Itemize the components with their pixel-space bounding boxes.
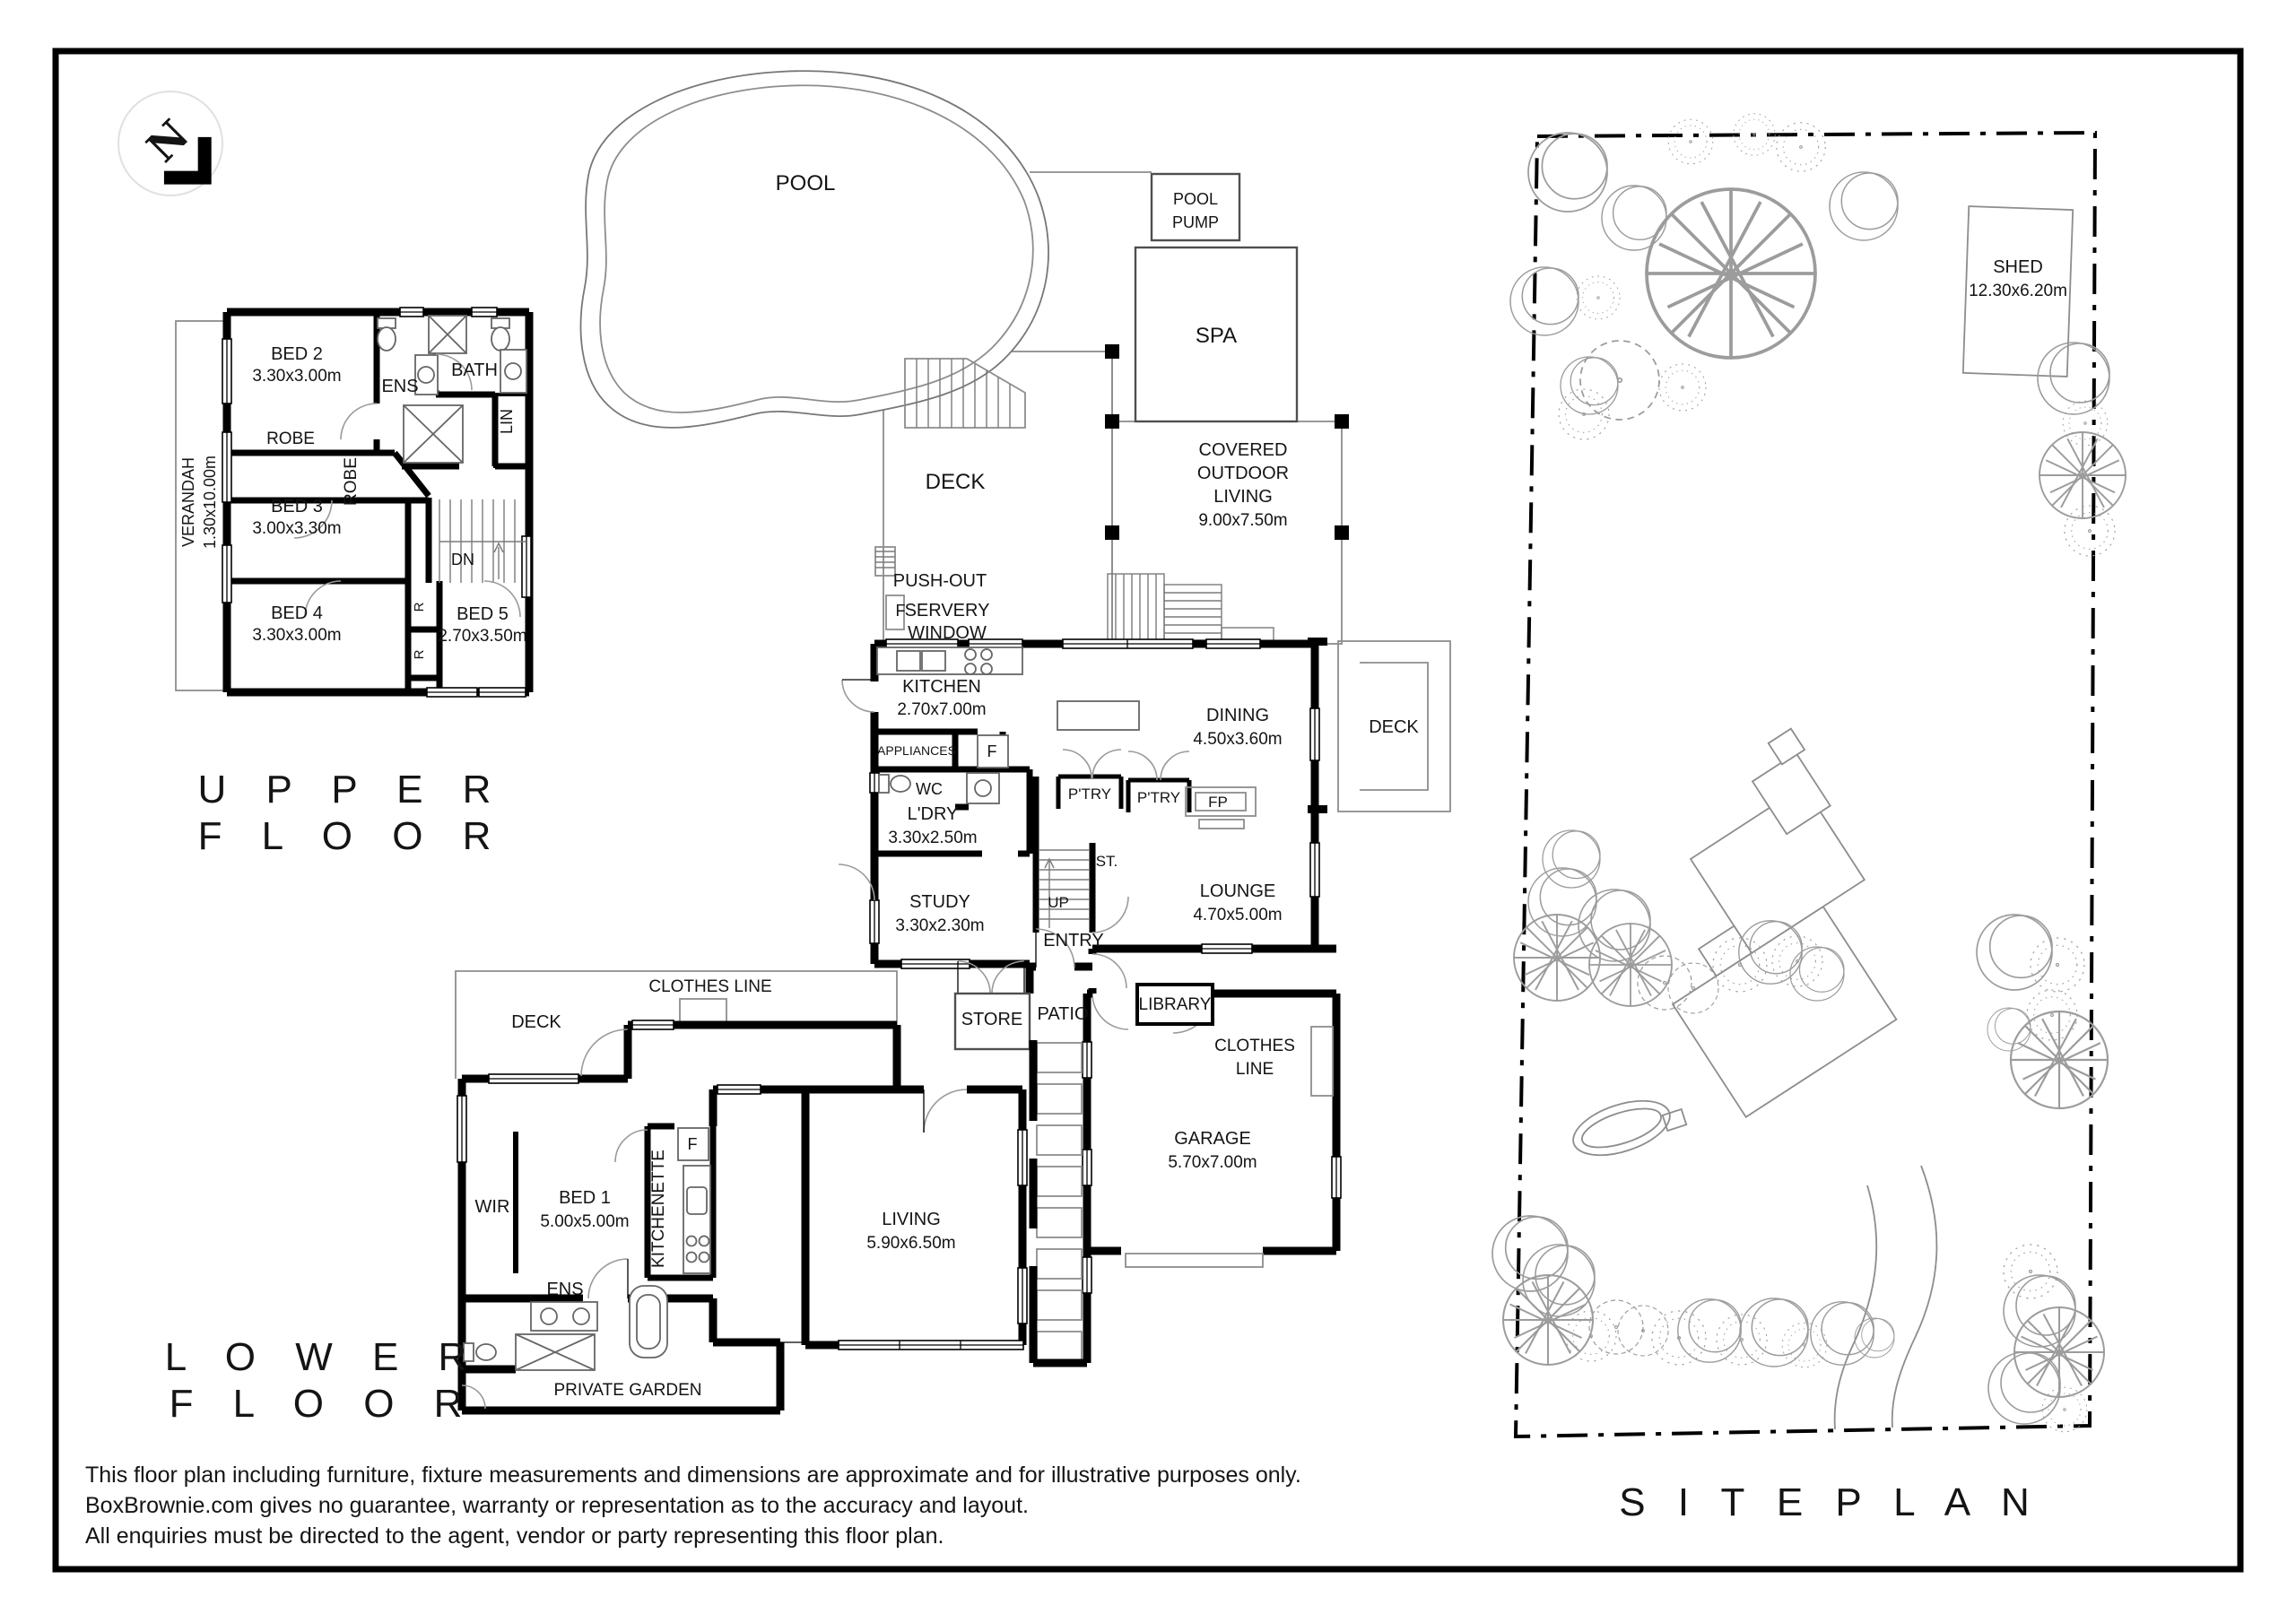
- svg-text:5.70x7.00m: 5.70x7.00m: [1168, 1153, 1257, 1172]
- svg-text:WINDOW: WINDOW: [908, 623, 987, 643]
- label-wir: WIR: [475, 1197, 510, 1217]
- svg-text:R: R: [412, 602, 427, 612]
- label-private-garden: PRIVATE GARDEN: [553, 1381, 701, 1400]
- svg-text:3.30x2.50m: 3.30x2.50m: [888, 829, 977, 847]
- label-garage: GARAGE: [1174, 1129, 1251, 1149]
- label-covered-outdoor-living: COVERED: [1199, 440, 1288, 460]
- label-dn: DN: [451, 551, 474, 568]
- label-kitchenette: KITCHENETTE: [649, 1150, 668, 1268]
- svg-text:5.00x5.00m: 5.00x5.00m: [540, 1212, 629, 1231]
- label-bed5: BED 5: [457, 604, 509, 624]
- label-living: LIVING: [882, 1210, 941, 1229]
- north-arrow-icon: N: [118, 91, 225, 198]
- label-lounge: LOUNGE: [1200, 881, 1275, 901]
- label-kitchen: KITCHEN: [902, 677, 981, 697]
- svg-text:R: R: [412, 649, 427, 659]
- svg-text:1.30x10.00m: 1.30x10.00m: [201, 456, 219, 549]
- label-deck-pool: DECK: [926, 470, 986, 494]
- disclaimer-line2: BoxBrownie.com gives no guarantee, warra…: [85, 1493, 1029, 1518]
- label-verandah: VERANDAH: [179, 457, 197, 547]
- pool: [581, 71, 1049, 428]
- label-clothesline-right: CLOTHES: [1214, 1037, 1295, 1055]
- svg-text:LIVING: LIVING: [1213, 487, 1273, 507]
- label-shed: SHED: [1993, 257, 2043, 277]
- site-plan-title: S I T E P L A N: [1619, 1480, 2039, 1524]
- label-ptry2: P'TRY: [1137, 789, 1180, 806]
- svg-text:F L O O R: F L O O R: [170, 1382, 477, 1426]
- upper-floor-title: U P P E R: [198, 768, 506, 811]
- svg-text:PUMP: PUMP: [1172, 213, 1219, 231]
- label-up: UP: [1048, 894, 1069, 911]
- label-patio: PATIO: [1037, 1004, 1088, 1024]
- label-ens-upper: ENS: [381, 377, 418, 396]
- label-pool-pump: POOL: [1173, 190, 1218, 208]
- label-ptry1: P'TRY: [1068, 785, 1111, 803]
- label-ldry: L'DRY: [908, 804, 959, 824]
- label-servery: PUSH-OUT: [893, 571, 987, 591]
- svg-text:5.90x6.50m: 5.90x6.50m: [866, 1234, 955, 1253]
- label-lin: LIN: [498, 409, 516, 434]
- label-fridge-lower: F: [688, 1135, 698, 1153]
- label-robe1: ROBE: [266, 430, 315, 448]
- svg-text:2.70x7.00m: 2.70x7.00m: [897, 700, 986, 719]
- label-study: STUDY: [909, 892, 970, 912]
- label-clothesline-lower: CLOTHES LINE: [648, 977, 771, 996]
- svg-text:3.30x2.30m: 3.30x2.30m: [895, 916, 984, 935]
- svg-text:OUTDOOR: OUTDOOR: [1197, 464, 1289, 483]
- svg-text:SERVERY: SERVERY: [905, 601, 990, 621]
- svg-text:F L O O R: F L O O R: [198, 814, 506, 858]
- label-st: ST.: [1096, 853, 1118, 870]
- svg-text:2.70x3.50m: 2.70x3.50m: [438, 627, 526, 646]
- label-robe2: ROBE: [342, 457, 361, 506]
- label-store: STORE: [961, 1010, 1023, 1029]
- svg-text:3.30x3.00m: 3.30x3.00m: [252, 367, 341, 386]
- svg-text:4.50x3.60m: 4.50x3.60m: [1193, 730, 1282, 749]
- label-bed1: BED 1: [559, 1188, 611, 1208]
- label-library: LIBRARY: [1139, 995, 1212, 1014]
- svg-text:3.00x3.30m: 3.00x3.30m: [252, 519, 341, 538]
- svg-text:9.00x7.50m: 9.00x7.50m: [1198, 511, 1287, 530]
- label-fp: FP: [1208, 794, 1228, 811]
- label-bed2: BED 2: [271, 344, 323, 364]
- label-dining: DINING: [1206, 706, 1269, 725]
- disclaimer-line3: All enquiries must be directed to the ag…: [85, 1523, 944, 1549]
- label-deck-lower: DECK: [511, 1012, 561, 1032]
- label-spa: SPA: [1196, 324, 1237, 348]
- floorplan-page: N: [0, 0, 2296, 1623]
- disclaimer-line1: This floor plan including furniture, fix…: [85, 1462, 1301, 1488]
- label-fridge: F: [987, 742, 997, 760]
- label-ens-lower: ENS: [546, 1280, 583, 1299]
- label-bed3: BED 3: [271, 497, 323, 516]
- svg-text:LINE: LINE: [1236, 1060, 1274, 1079]
- svg-text:3.30x3.00m: 3.30x3.00m: [252, 626, 341, 645]
- label-bath: BATH: [451, 360, 498, 380]
- label-bed4: BED 4: [271, 603, 323, 623]
- label-appliances: APPLIANCES: [877, 743, 956, 758]
- lower-floor-title: L O W E R: [165, 1335, 482, 1379]
- label-entry: ENTRY: [1043, 931, 1103, 950]
- svg-text:4.70x5.00m: 4.70x5.00m: [1193, 906, 1282, 924]
- label-wc: WC: [916, 780, 943, 798]
- label-deck-right: DECK: [1369, 717, 1419, 737]
- svg-text:12.30x6.20m: 12.30x6.20m: [1969, 282, 2067, 300]
- label-pool: POOL: [776, 171, 836, 195]
